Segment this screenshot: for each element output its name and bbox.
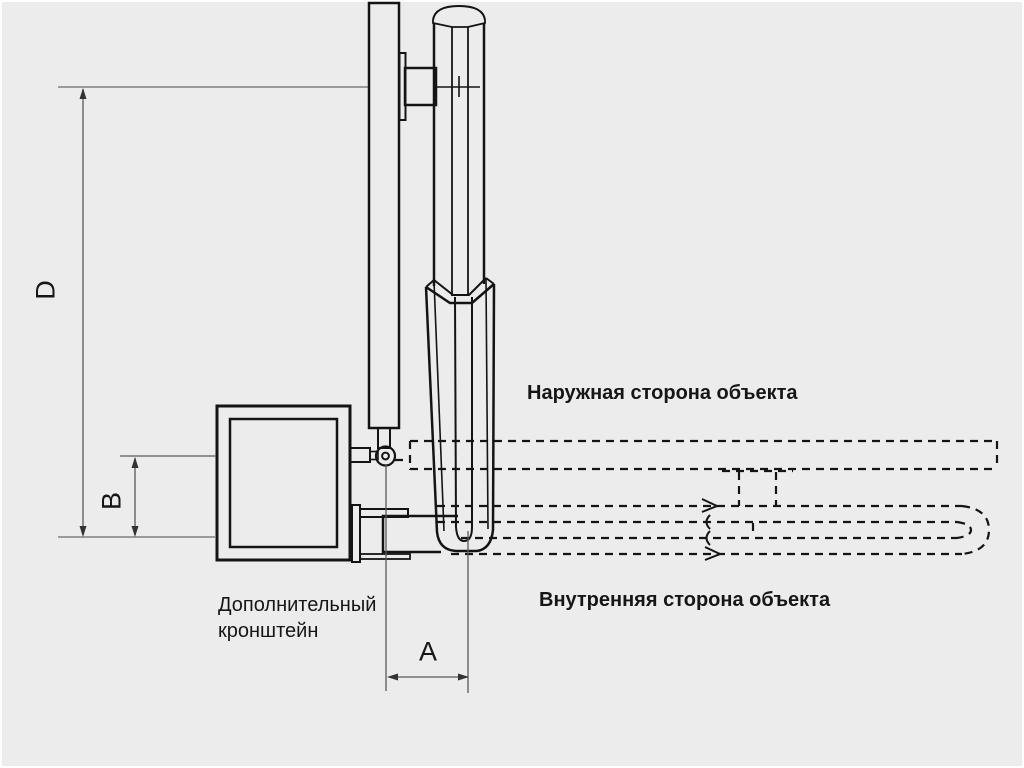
mount-plate — [400, 53, 437, 120]
diagram-linework — [0, 0, 1024, 768]
dimension-b-label: B — [97, 492, 128, 510]
hinge-pivot — [376, 428, 395, 466]
inner-side-rod-dashed — [437, 506, 989, 554]
dimension-d-label: D — [31, 280, 62, 300]
round-post-sleeve — [426, 278, 494, 551]
installation-diagram: D B A Наружная сторона объекта Внутрення… — [0, 0, 1024, 768]
reference-lines — [58, 87, 368, 537]
dimension-a-label: A — [419, 637, 437, 668]
lower-clamp — [352, 505, 458, 562]
bracket-caption: Дополнительный кронштейн — [218, 592, 376, 644]
outer-side-bar-dashed — [395, 441, 997, 470]
mast-flat-bar — [369, 3, 399, 428]
outer-side-label: Наружная сторона объекта — [527, 380, 798, 406]
bracket-caption-line2: кронштейн — [218, 618, 376, 644]
bracket-box — [217, 406, 350, 560]
dimension-d — [80, 88, 87, 537]
rod-break-symbols — [702, 499, 720, 560]
clevis-arm — [350, 448, 378, 462]
dimension-b — [120, 456, 216, 537]
bracket-caption-line1: Дополнительный — [218, 592, 376, 618]
round-post-upper — [433, 6, 485, 296]
inner-side-label: Внутренняя сторона объекта — [539, 587, 830, 613]
